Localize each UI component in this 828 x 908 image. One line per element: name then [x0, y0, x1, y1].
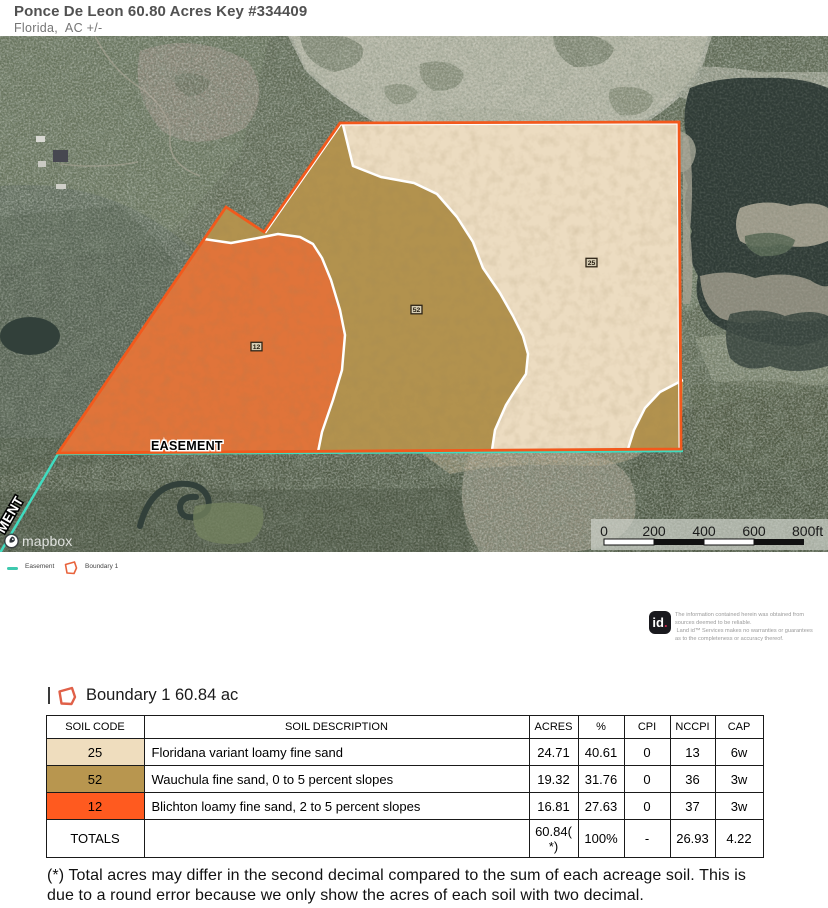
svg-text:800ft: 800ft [792, 523, 823, 539]
svg-text:mapbox: mapbox [22, 533, 72, 549]
svg-text:400: 400 [692, 523, 716, 539]
svg-text:0: 0 [600, 523, 608, 539]
svg-text:200: 200 [642, 523, 666, 539]
svg-text:25: 25 [588, 260, 596, 267]
svg-text:52: 52 [413, 307, 421, 314]
svg-text:600: 600 [742, 523, 766, 539]
svg-text:EASEMENT: EASEMENT [151, 439, 223, 453]
svg-text:12: 12 [253, 344, 261, 351]
